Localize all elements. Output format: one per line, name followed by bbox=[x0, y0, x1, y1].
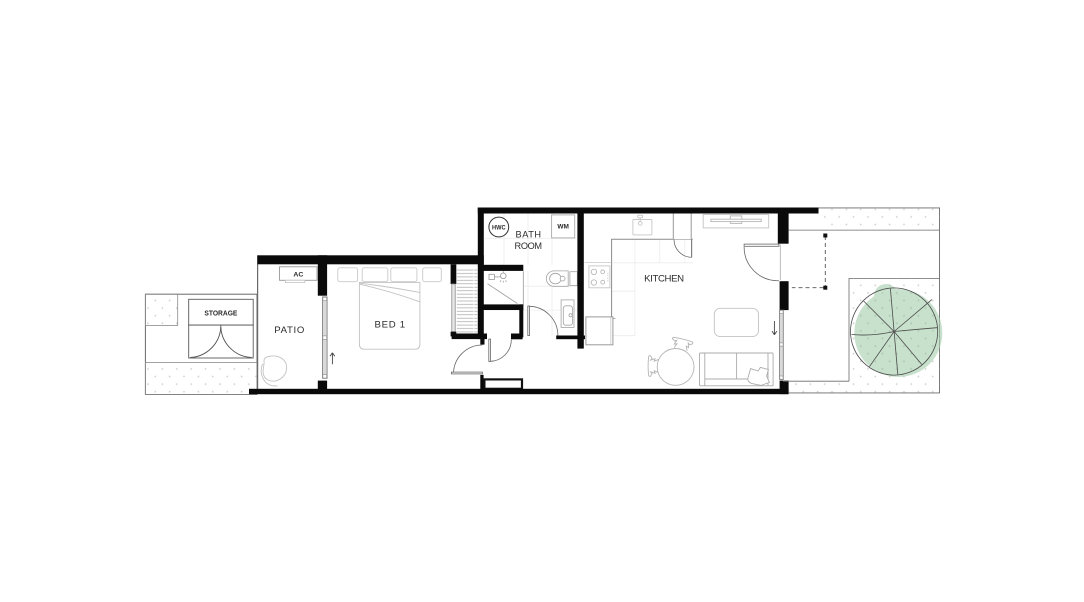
svg-text:WM: WM bbox=[557, 224, 569, 231]
svg-text:KITCHEN: KITCHEN bbox=[644, 274, 685, 285]
svg-text:ROOM: ROOM bbox=[515, 241, 544, 251]
svg-text:BED 1: BED 1 bbox=[375, 319, 407, 330]
svg-text:PATIO: PATIO bbox=[274, 325, 305, 336]
svg-text:BATH: BATH bbox=[516, 229, 543, 239]
svg-text:AC: AC bbox=[293, 271, 303, 278]
svg-text:HWC: HWC bbox=[492, 225, 506, 231]
svg-text:STORAGE: STORAGE bbox=[204, 310, 237, 317]
